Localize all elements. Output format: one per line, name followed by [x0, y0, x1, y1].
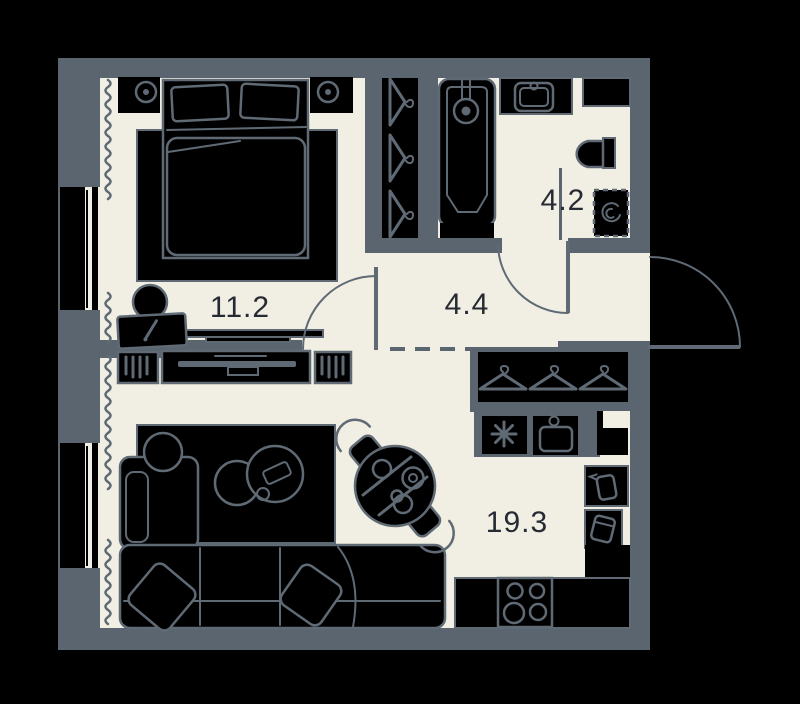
- window-glazing: [60, 443, 85, 568]
- room-label-living-kitchen: 19.3: [486, 506, 548, 539]
- bathtub: [439, 79, 495, 238]
- window-glazing: [60, 187, 85, 310]
- toilet-icon: [577, 138, 615, 168]
- round-pillow: [144, 433, 182, 471]
- sink-icon: [515, 83, 553, 112]
- console-shelf: [206, 337, 290, 342]
- blanket: [167, 138, 305, 255]
- room-label-bathroom: 4.2: [541, 184, 586, 217]
- washing-machine-icon: [594, 190, 628, 236]
- dining-table: [355, 446, 435, 526]
- floor-plan-page: 11.2: [0, 0, 800, 704]
- pillow: [171, 85, 229, 122]
- tv-unit: [118, 351, 351, 383]
- entry-threshold: [630, 253, 650, 347]
- snowflake-icon: [492, 422, 516, 446]
- cabinet: [583, 78, 630, 106]
- closet-kitchen: [470, 347, 650, 412]
- nightstand: [118, 77, 160, 113]
- vanity-desk: [117, 313, 187, 349]
- stove-burners-icon: [498, 578, 552, 627]
- pillow: [240, 84, 299, 121]
- console-shelf: [180, 330, 323, 337]
- floor-plan: 11.2: [0, 0, 800, 704]
- room-label-hallway: 4.4: [445, 288, 490, 321]
- room-label-bedroom: 11.2: [210, 291, 270, 324]
- closet-bedroom-side: [382, 78, 418, 238]
